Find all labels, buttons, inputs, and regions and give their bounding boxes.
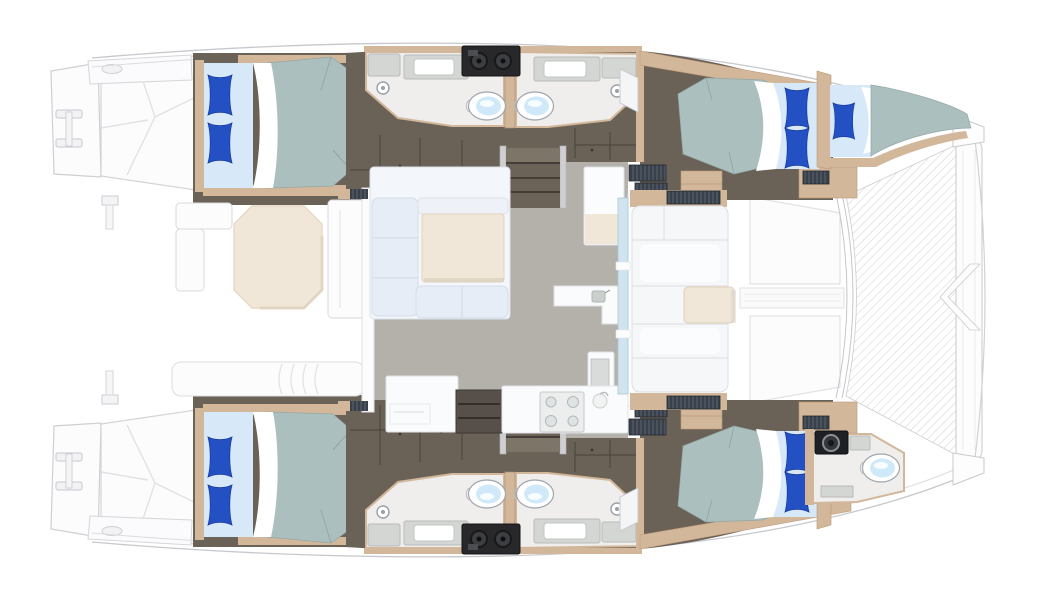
sink-counter	[821, 486, 853, 497]
cockpit-bench	[176, 229, 204, 291]
octagonal-table	[234, 206, 322, 308]
floorplan-stage	[0, 0, 1039, 600]
davit-fitting	[102, 395, 118, 404]
catamaran-floorplan	[0, 0, 1039, 600]
davit-arm	[106, 371, 113, 395]
louvered-locker	[667, 396, 720, 409]
dining-table	[422, 214, 504, 282]
window-mullion	[616, 330, 630, 338]
louvered-locker	[350, 401, 368, 411]
counter-sink	[592, 291, 605, 302]
window-mullion	[616, 262, 630, 270]
forward-crossbeam	[956, 140, 982, 460]
table-shadow	[731, 290, 736, 323]
refrigerator-front	[591, 359, 609, 388]
davit-arm	[106, 205, 113, 229]
burner	[546, 416, 557, 427]
cockpit-table	[684, 287, 734, 323]
davit-fitting	[102, 196, 118, 205]
table-shadow	[424, 278, 504, 282]
burner	[568, 397, 579, 408]
corner-trim	[338, 189, 350, 199]
front-window-band	[618, 198, 628, 394]
settee-cushion-top	[418, 198, 508, 214]
burner	[568, 416, 578, 426]
washer-door-center	[828, 440, 834, 446]
cockpit-bench	[176, 203, 232, 229]
bench-cushion	[640, 244, 720, 282]
louvered-locker	[350, 189, 368, 199]
corner-trim	[338, 401, 350, 411]
sun-pad-lower	[750, 316, 840, 403]
cabinet-top	[585, 214, 623, 244]
settee-cushion-left	[372, 198, 418, 316]
walk-pad	[740, 288, 844, 308]
round-sink	[593, 394, 607, 408]
bench-cushion	[640, 328, 720, 354]
head-panel	[850, 436, 870, 450]
open-shelf-unit	[456, 390, 502, 433]
aft-lounge-bench	[172, 362, 364, 396]
sun-pad-upper	[750, 197, 840, 284]
forward-cockpit	[630, 190, 736, 410]
foredeck	[740, 197, 844, 403]
louvered-locker	[667, 191, 720, 204]
burner	[546, 397, 556, 407]
